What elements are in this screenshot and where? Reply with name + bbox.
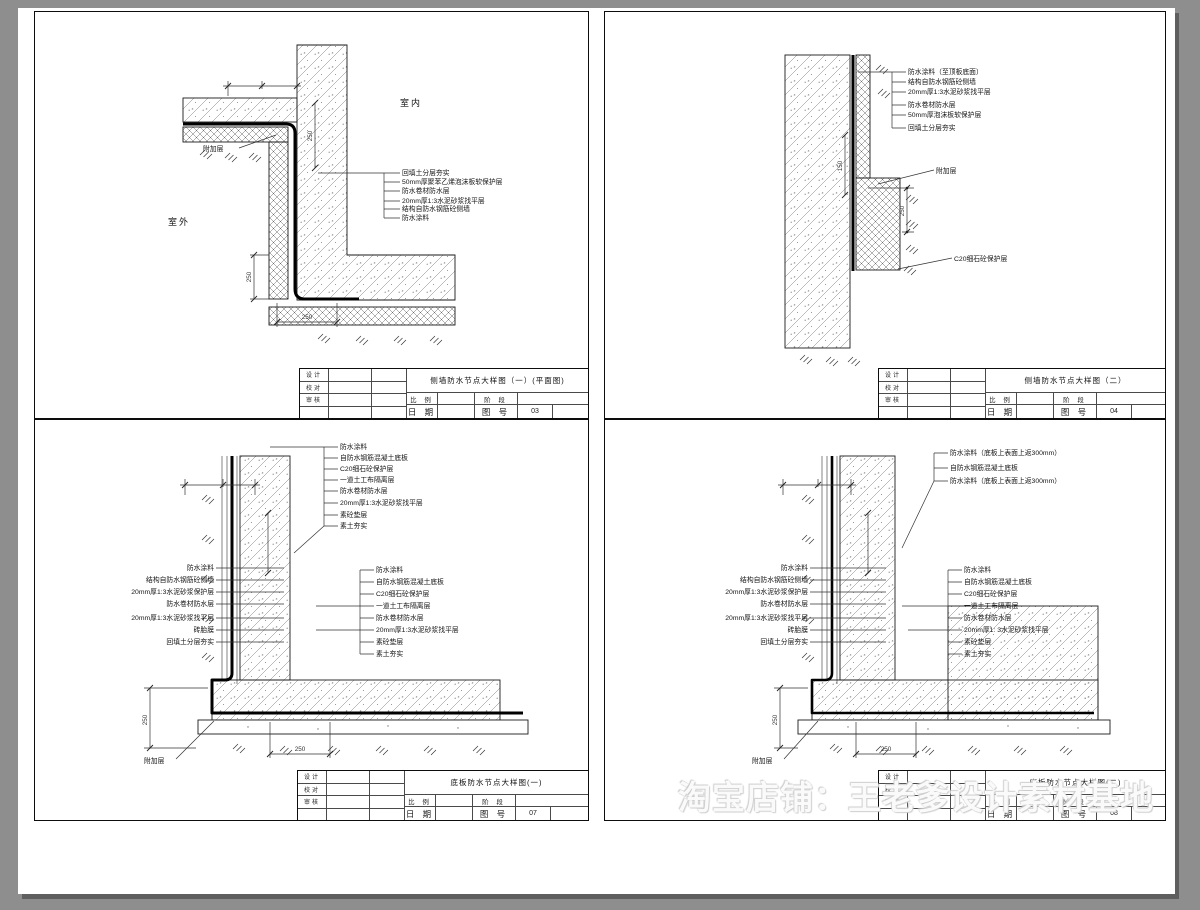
tb-review-label: 审核: [300, 394, 328, 406]
drawing-title: 底板防水节点大样图(一): [405, 771, 588, 794]
tb-figno-label: 图 号: [473, 807, 515, 820]
tb-stage-label: 阶 段: [1054, 393, 1096, 404]
tb-date-label: 日 期: [407, 405, 437, 418]
image-viewer-canvas: { "watermark": "淘宝店铺：王老爹设计素材基地", "titleb…: [0, 0, 1200, 910]
drawing-number: 03: [518, 405, 552, 418]
tb-proof-label: 校对: [298, 784, 326, 796]
tb-proof-label: 校对: [300, 382, 328, 394]
drawing-number: 04: [1097, 405, 1131, 418]
title-block-4: 设计 校对 审核 底板防水节点大样图(二) 比 例 阶 段 日 期 图 号 08: [878, 770, 1166, 821]
tb-stage-label: 阶 段: [475, 393, 517, 404]
drawing-title: 侧墙防水节点大样图（一）(平面图): [407, 369, 588, 392]
tb-design-label: 设计: [300, 369, 328, 381]
drawing-sheet: 250 250 250 附加层 室内 室外 回填土分层夯实 50mm厚聚苯乙烯泡…: [18, 8, 1175, 894]
tb-stage-label: 阶 段: [1054, 795, 1096, 806]
title-block-1: 设计 校对 审核 侧墙防水节点大样图（一）(平面图) 比 例 阶 段 日 期 图…: [299, 368, 589, 419]
tb-design-label: 设计: [298, 771, 326, 783]
tb-design-label: 设计: [879, 771, 907, 783]
drawing-number: 07: [516, 807, 550, 820]
drawing-number: 08: [1097, 807, 1131, 820]
tb-stage-label: 阶 段: [473, 795, 515, 806]
tb-design-label: 设计: [879, 369, 907, 381]
drawing-panel-4: 设计 校对 审核 底板防水节点大样图(二) 比 例 阶 段 日 期 图 号 08: [604, 419, 1166, 821]
tb-scale-label: 比 例: [986, 795, 1016, 806]
tb-scale-label: 比 例: [405, 795, 435, 806]
tb-date-label: 日 期: [405, 807, 435, 820]
tb-date-label: 日 期: [986, 405, 1016, 418]
drawing-title: 侧墙防水节点大样图（二）: [986, 369, 1165, 392]
drawing-panel-2: 设计 校对 审核 侧墙防水节点大样图（二） 比 例 阶 段 日 期 图 号 04: [604, 11, 1166, 419]
tb-figno-label: 图 号: [1054, 807, 1096, 820]
tb-review-label: 审核: [879, 796, 907, 808]
tb-review-label: 审核: [879, 394, 907, 406]
tb-scale-label: 比 例: [407, 393, 437, 404]
title-block-3: 设计 校对 审核 底板防水节点大样图(一) 比 例 阶 段 日 期 图 号 07: [297, 770, 589, 821]
tb-review-label: 审核: [298, 796, 326, 808]
drawing-panel-1: 设计 校对 审核 侧墙防水节点大样图（一）(平面图) 比 例 阶 段 日 期 图…: [34, 11, 589, 419]
tb-figno-label: 图 号: [475, 405, 517, 418]
tb-scale-label: 比 例: [986, 393, 1016, 404]
tb-figno-label: 图 号: [1054, 405, 1096, 418]
tb-proof-label: 校对: [879, 784, 907, 796]
title-block-2: 设计 校对 审核 侧墙防水节点大样图（二） 比 例 阶 段 日 期 图 号 04: [878, 368, 1166, 419]
tb-date-label: 日 期: [986, 807, 1016, 820]
drawing-title: 底板防水节点大样图(二): [986, 771, 1165, 794]
tb-proof-label: 校对: [879, 382, 907, 394]
drawing-panel-3: 设计 校对 审核 底板防水节点大样图(一) 比 例 阶 段 日 期 图 号 07: [34, 419, 589, 821]
